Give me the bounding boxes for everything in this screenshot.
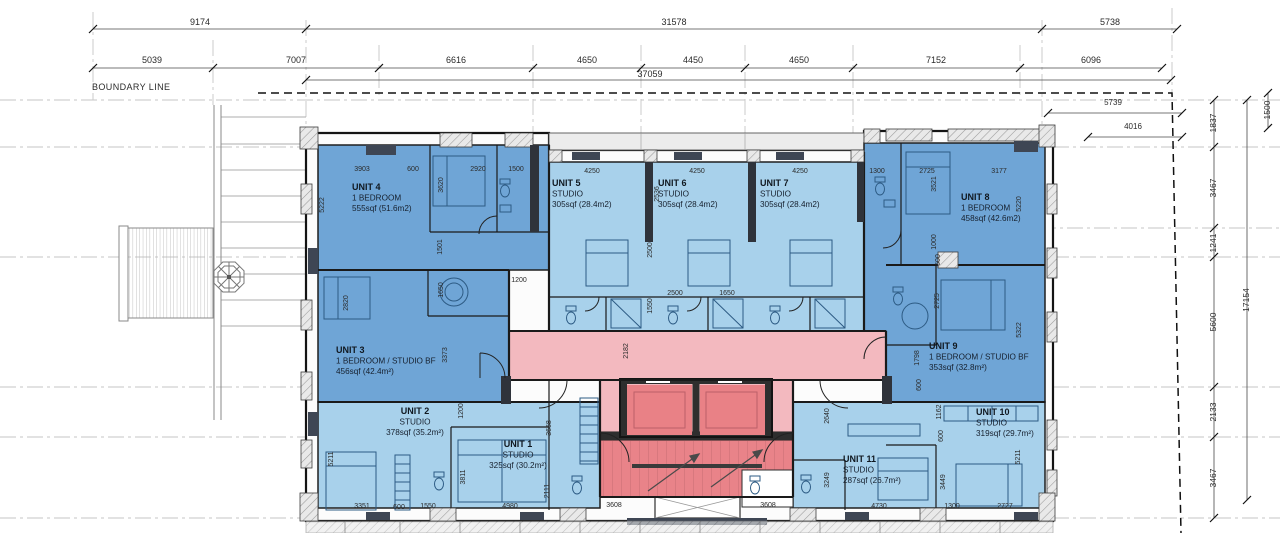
unit-10-name: UNIT 10 [976,407,1010,417]
dim-label: 3668 [546,420,553,436]
dim-label: 2640 [824,408,831,424]
dim-label: 5039 [142,55,162,65]
dim-label: 1300 [944,503,960,510]
dim-label: 2182 [623,343,630,359]
dim-label: 1000 [931,234,938,250]
dim-label: 2500 [647,242,654,258]
units-5-6-7-area [549,162,864,332]
dim-label: 1300 [869,168,885,175]
dim-label: 1501 [437,239,444,255]
unit-5-area: 305sqf (28.4m2) [552,200,612,209]
dim-label: 2500 [667,290,683,297]
floor-plan-page: BOUNDARY LINE 91743157857385039700766164… [0,0,1280,533]
unit-7-type: STUDIO [760,190,791,199]
dim-label: 4250 [792,168,808,175]
lower-wall-band [306,521,1053,533]
dim-label: 7007 [286,55,306,65]
dim-label: 3373 [442,347,449,363]
dim-label: 5220 [1016,196,1023,212]
dim-label: 1500 [508,166,524,173]
unit-5-name: UNIT 5 [552,178,581,188]
dim-label: 4016 [1124,122,1142,131]
dim-label: 3608 [760,502,776,509]
corridor-area [509,331,886,380]
dim-label: 3177 [991,168,1007,175]
unit-1-type: STUDIO [503,451,534,460]
dim-label: 600 [407,166,419,173]
column-marker-octagon [214,262,244,292]
unit-5-type: STUDIO [552,190,583,199]
dim-label: 3467 [1208,178,1218,197]
deck-stair-rail [119,226,128,321]
dim-label: 37059 [637,69,662,79]
dim-label: 4650 [789,55,809,65]
dim-label: 1798 [914,350,921,366]
dim-label: 4980 [502,503,518,510]
dim-label: 2920 [470,166,486,173]
unit-6-type: STUDIO [658,190,689,199]
unit-8-type: 1 BEDROOM [961,204,1010,213]
unit-11-name: UNIT 11 [843,454,876,464]
dim-label: 4250 [584,168,600,175]
unit-2-name: UNIT 2 [401,406,430,416]
unit-9-type: 1 BEDROOM / STUDIO BF [929,353,1029,362]
dim-label: 3608 [606,502,622,509]
exterior-deck [119,105,306,420]
floor-plan-drawing: BOUNDARY LINE 91743157857385039700766164… [0,0,1280,533]
unit-2-area: 378sqf (35.2m²) [386,428,444,437]
dim-label: 4250 [689,168,705,175]
dim-label: 3620 [438,177,445,193]
unit-3-name: UNIT 3 [336,345,365,355]
unit-10-area: 319sqf (29.7m²) [976,429,1034,438]
dim-label: 2727 [997,503,1013,510]
dim-label: 5211 [328,451,335,466]
dim-label: 6096 [1081,55,1101,65]
dim-label: 1162 [936,404,943,419]
dim-label: 3351 [354,503,370,510]
unit-7-name: UNIT 7 [760,178,789,188]
unit-11-type: STUDIO [843,466,874,475]
unit-3-type: 1 BEDROOM / STUDIO BF [336,357,436,366]
dim-label: 5738 [1100,17,1120,27]
dim-label: 1550 [647,298,654,314]
unit-11-area: 287sqf (26.7m²) [843,476,901,485]
dim-label: 3467 [1208,468,1218,487]
dim-label: 600 [938,430,945,442]
dim-label: 4650 [577,55,597,65]
dim-label: 1550 [420,503,436,510]
unit-4-name: UNIT 4 [352,182,381,192]
boundary-line-label: BOUNDARY LINE [92,82,170,92]
dim-label: 2725 [919,168,935,175]
dim-label: 1650 [438,282,445,298]
unit-4-area: 555sqf (51.6m2) [352,204,412,213]
dim-label: 5211 [1015,449,1022,464]
unit-4-type: 1 BEDROOM [352,194,401,203]
dim-label: 4730 [871,503,887,510]
dim-label: 600 [916,379,923,391]
unit-7-area: 305sqf (28.4m2) [760,200,820,209]
dim-label: 600 [935,254,942,266]
dim-label: 3903 [354,166,370,173]
dim-label: 31578 [661,17,686,27]
dim-label: 1650 [719,290,735,297]
dim-label: 3249 [824,472,831,488]
unit-1-area: 325sqf (30.2m²) [489,461,547,470]
unit-1-name: UNIT 1 [504,439,533,449]
unit-9-area: 353sqf (32.8m²) [929,363,987,372]
dim-label: 5739 [1104,98,1122,107]
dim-label: 5322 [1016,322,1023,338]
elevators [620,379,772,437]
dim-label: 5222 [319,197,326,213]
unit-9-name: UNIT 9 [929,341,958,351]
dim-label: 2133 [1208,402,1218,421]
dim-label: 1500 [1262,100,1272,119]
dim-label: 6616 [446,55,466,65]
unit-8-name: UNIT 8 [961,192,990,202]
unit-2-type: STUDIO [400,418,431,427]
dim-label: 3449 [940,474,947,490]
dim-label: 7152 [926,55,946,65]
unit-3-area: 456sqf (42.4m²) [336,367,394,376]
dim-label: 2725 [934,293,941,309]
unit-10-type: STUDIO [976,419,1007,428]
dim-label: 4450 [683,55,703,65]
dim-label: 9174 [190,17,210,27]
dim-label: 1837 [1208,113,1218,132]
stair-void [655,497,740,518]
dim-label: 1200 [458,403,465,419]
dim-label: 5600 [1208,312,1218,331]
dim-label: 17154 [1241,288,1251,312]
dim-label: 1241 [1208,233,1218,252]
dim-label: 2820 [343,295,350,311]
unit-8-area: 458sqf (42.6m2) [961,214,1021,223]
dim-label: 1200 [511,277,527,284]
terrace-band [549,133,864,150]
deck-stair-treads [128,228,213,318]
unit-6-area: 305sqf (28.4m2) [658,200,718,209]
dim-label: 2111 [544,484,551,499]
dim-label: 3811 [460,469,467,484]
unit-6-name: UNIT 6 [658,178,687,188]
dim-label: 3521 [931,176,938,192]
dim-label: 600 [393,504,405,511]
